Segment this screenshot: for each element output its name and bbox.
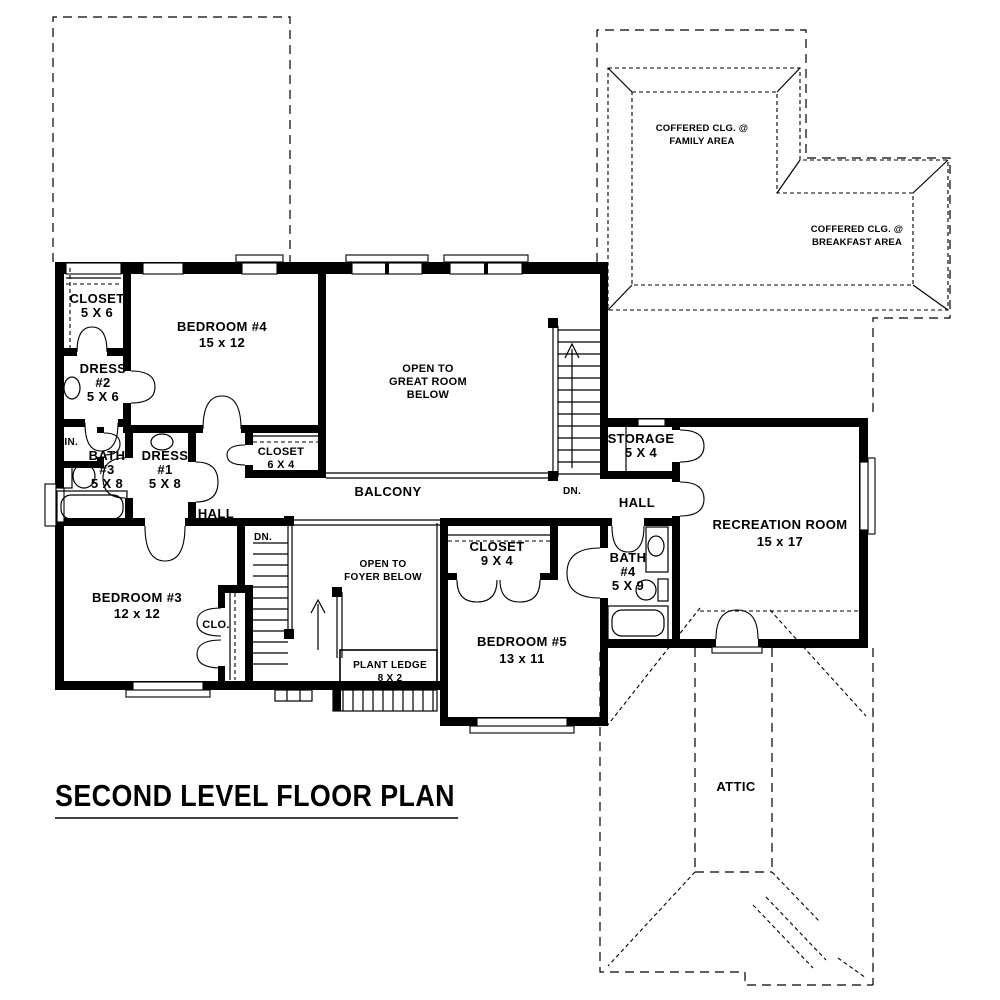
label-dn-foyer: DN. [254, 532, 272, 543]
label-dress1-size: 5 X 8 [149, 476, 181, 491]
label-bath3-num: #3 [99, 462, 114, 477]
label-closet-b4: CLOSET [69, 291, 124, 306]
label-dress2-num: #2 [95, 375, 110, 390]
label-closet-b5: CLOSET [469, 539, 524, 554]
great-room-railing [326, 473, 553, 478]
label-dn-main: DN. [563, 486, 581, 497]
toilet-tank [658, 579, 668, 601]
deck-below [275, 690, 437, 711]
label-closet-hall-size: 6 X 4 [267, 459, 295, 471]
label-bath3: BATH [89, 448, 126, 463]
vanity [646, 527, 668, 572]
label-bath3-size: 5 X 8 [91, 476, 123, 491]
foyer-staircase [253, 516, 440, 664]
label-coffered-family-2: FAMILY AREA [669, 136, 734, 147]
label-coffered-breakfast-1: COFFERED CLG. @ [811, 224, 904, 235]
label-closet-hall: CLOSET [258, 446, 304, 458]
main-staircase [548, 318, 600, 481]
label-bath4-num: #4 [620, 564, 636, 579]
label-bedroom5: BEDROOM #5 [477, 634, 567, 649]
label-coffered-family-1: COFFERED CLG. @ [656, 123, 749, 134]
label-bedroom4: BEDROOM #4 [177, 319, 267, 334]
label-balcony: BALCONY [354, 484, 421, 499]
windows [45, 255, 875, 733]
foyer-stair-arrow [311, 600, 325, 650]
label-open-foyer-2: FOYER BELOW [344, 572, 422, 583]
label-linen: LIN. [58, 437, 78, 448]
label-recreation-size: 15 x 17 [757, 534, 803, 549]
label-dress1-num: #1 [157, 462, 172, 477]
sink-oval [648, 536, 664, 556]
label-attic: ATTIC [716, 779, 756, 794]
label-closet-b5-size: 9 X 4 [481, 553, 514, 568]
label-plant-ledge-size: 8 X 2 [378, 673, 403, 684]
label-open-foyer-1: OPEN TO [360, 559, 407, 570]
bath3-fixtures [57, 464, 127, 523]
floor-plan-page: CLOSET 5 X 6 BEDROOM #4 15 x 12 DRESS #2… [0, 0, 1000, 1000]
label-bedroom5-size: 13 x 11 [499, 651, 544, 666]
page-title: SECOND LEVEL FLOOR PLAN [55, 778, 455, 813]
label-bath4: BATH [610, 550, 647, 565]
label-closet-b4-size: 5 X 6 [81, 305, 113, 320]
label-bedroom4-size: 15 x 12 [199, 335, 245, 350]
label-bath4-size: 5 X 9 [612, 578, 644, 593]
label-dress1: DRESS [142, 448, 189, 463]
label-plant-ledge: PLANT LEDGE [353, 660, 427, 671]
label-dress2: DRESS [80, 361, 127, 376]
attic-outline [600, 608, 873, 985]
label-storage: STORAGE [608, 431, 675, 446]
roof-outline-top-left [53, 17, 290, 262]
label-dress2-size: 5 X 6 [87, 389, 119, 404]
label-clo: CLO. [202, 619, 229, 631]
plan-title: SECOND LEVEL FLOOR PLAN [55, 778, 458, 818]
label-hall-east: HALL [619, 495, 655, 510]
label-coffered-breakfast-2: BREAKFAST AREA [812, 237, 902, 248]
label-open-great-1: OPEN TO [402, 363, 454, 375]
label-recreation: RECREATION ROOM [712, 517, 847, 532]
floor-plan-drawing: CLOSET 5 X 6 BEDROOM #4 15 x 12 DRESS #2… [0, 0, 1000, 1000]
label-hall-west: HALL [198, 506, 234, 521]
label-bedroom3-size: 12 x 12 [114, 606, 160, 621]
label-open-great-2: GREAT ROOM [389, 376, 467, 388]
label-open-great-3: BELOW [407, 389, 450, 401]
label-storage-size: 5 X 4 [625, 445, 658, 460]
sink-oval [64, 377, 80, 399]
label-bedroom3: BEDROOM #3 [92, 590, 182, 605]
